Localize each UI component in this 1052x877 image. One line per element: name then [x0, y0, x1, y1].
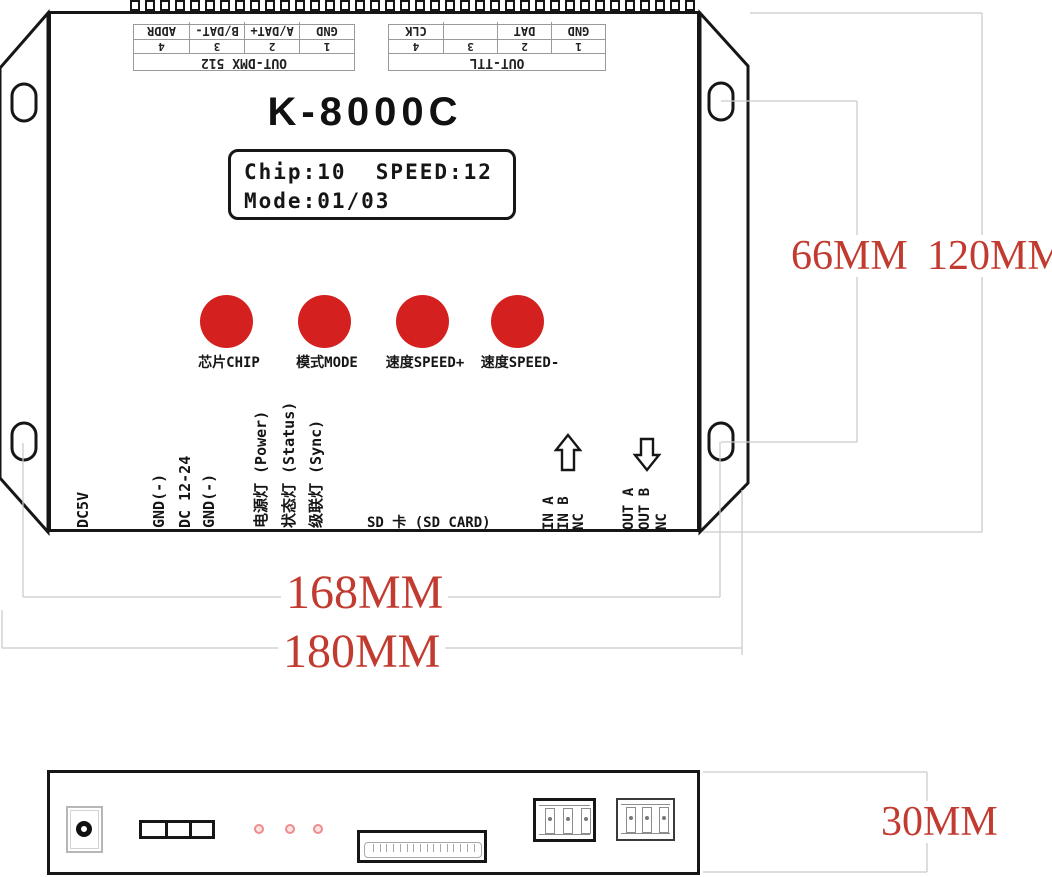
model-title: K-8000C — [230, 90, 500, 135]
lcd-line-2: Mode:01/03 — [244, 187, 513, 216]
connector-tooth — [655, 0, 665, 11]
port-pin-number: 3 — [189, 39, 244, 53]
terminal-screw — [642, 807, 652, 833]
connector-tooth — [595, 0, 605, 11]
gnd-label-2: GND(-) — [200, 474, 218, 528]
port-pin-number: 1 — [551, 39, 605, 53]
terminal-screw — [659, 807, 669, 833]
screw-dot — [548, 817, 552, 821]
connector-tooth — [145, 0, 155, 11]
connector-tooth — [415, 0, 425, 11]
screw-dot — [629, 816, 633, 820]
mounting-hole — [12, 423, 36, 460]
power-terminal-block — [139, 820, 215, 839]
connector-tooth — [190, 0, 200, 11]
sd-contact-tick — [447, 844, 448, 852]
dc-jack-pin — [76, 821, 92, 837]
lcd-line-1: Chip:10 SPEED:12 — [244, 158, 513, 187]
port-pin-name: CLK — [389, 22, 443, 39]
port-pin-name: DAT — [497, 22, 551, 39]
gnd-label-1: GND(-) — [150, 474, 168, 528]
connector-tooth — [475, 0, 485, 11]
sd-contact-tick — [427, 844, 428, 852]
dim-depth: 30MM — [876, 801, 1003, 843]
out-a-label: OUT A — [622, 488, 637, 530]
connector-tooth — [235, 0, 245, 11]
port-table-ttl: OUT-TTL1234GNDDATCLK — [388, 24, 606, 71]
dim-mount-width: 168MM — [281, 569, 448, 617]
led-indicator — [313, 824, 323, 834]
dim-hole-span: 66MM — [786, 235, 913, 277]
screw-dot — [584, 817, 588, 821]
terminal-screw — [545, 808, 555, 834]
lcd-display: Chip:10 SPEED:12 Mode:01/03 — [228, 149, 516, 220]
dim-total-width: 180MM — [278, 628, 445, 676]
sd-contact-tick — [474, 844, 475, 852]
connector-tooth — [400, 0, 410, 11]
port-table-dmx: OUT-DMX 5121234GNDA/DAT+B/DAT-ADDR — [133, 24, 355, 71]
nc-in-label: NC — [572, 513, 587, 530]
connector-tooth — [505, 0, 515, 11]
connector-tooth — [205, 0, 215, 11]
port-pin-number: 4 — [134, 39, 189, 53]
port-pin-number: 1 — [299, 39, 354, 53]
port-title: OUT-TTL — [389, 53, 605, 70]
port-pin-number: 2 — [497, 39, 551, 53]
sd-contact-tick — [413, 844, 414, 852]
power-led-label: 电源灯 (Power) — [252, 411, 270, 528]
connector-tooth — [580, 0, 590, 11]
speed-minus-button-label: 速度SPEED- — [445, 352, 595, 372]
terminal-line — [621, 804, 670, 805]
mounting-hole — [12, 84, 36, 121]
connector-tooth — [295, 0, 305, 11]
sd-card-label: SD 卡 (SD CARD) — [367, 512, 491, 532]
port-pin-name: GND — [551, 22, 605, 39]
screw-dot — [566, 817, 570, 821]
status-led-label: 状态灯 (Status) — [280, 402, 298, 528]
screw-dot — [662, 816, 666, 820]
sd-card-slot — [357, 830, 487, 863]
port-pin-number: 2 — [244, 39, 299, 53]
output-terminal-block-2 — [616, 798, 675, 841]
sd-slot-contacts — [364, 842, 482, 858]
dim-height: 120MM — [922, 235, 1052, 277]
port-title: OUT-DMX 512 — [134, 53, 354, 70]
terminal-line — [621, 833, 670, 834]
sd-contact-tick — [467, 844, 468, 852]
out-b-label: OUT B — [638, 488, 653, 530]
connector-tooth — [130, 0, 140, 11]
chip-button — [200, 295, 253, 348]
port-pin-name: GND — [299, 22, 354, 39]
sd-contact-tick — [433, 844, 434, 852]
connector-tooth — [445, 0, 455, 11]
connector-tooth — [685, 0, 695, 11]
port-pin-number: 3 — [443, 39, 497, 53]
connector-tooth — [430, 0, 440, 11]
connector-tooth — [220, 0, 230, 11]
sd-contact-tick — [453, 844, 454, 852]
dc5v-label: DC5V — [74, 492, 92, 528]
connector-tooth — [310, 0, 320, 11]
connector-tooth — [160, 0, 170, 11]
connector-tooth — [325, 0, 335, 11]
connector-tooth — [250, 0, 260, 11]
diagram-canvas: K-8000C Chip:10 SPEED:12 Mode:01/03 SD 卡… — [0, 0, 1052, 877]
connector-tooth — [625, 0, 635, 11]
sd-contact-tick — [407, 844, 408, 852]
led-indicator — [254, 824, 264, 834]
port-pin-name: A/DAT+ — [244, 22, 299, 39]
port-pin-name: ADDR — [134, 22, 189, 39]
terminal-screw — [581, 808, 591, 834]
sd-contact-tick — [400, 844, 401, 852]
sd-contact-tick — [380, 844, 381, 852]
connector-tooth — [265, 0, 275, 11]
connector-tooth — [370, 0, 380, 11]
dc12-24-label: DC 12-24 — [176, 456, 194, 528]
connector-tooth — [175, 0, 185, 11]
connector-tooth — [535, 0, 545, 11]
in-b-label: IN B — [557, 496, 572, 530]
speed-minus-button — [491, 295, 544, 348]
sd-contact-tick — [386, 844, 387, 852]
sd-contact-tick — [460, 844, 461, 852]
connector-tooth — [280, 0, 290, 11]
connector-tooth — [640, 0, 650, 11]
output-terminal-block-1 — [533, 798, 596, 842]
port-pin-name: B/DAT- — [189, 22, 244, 39]
connector-tooth — [565, 0, 575, 11]
connector-tooth — [355, 0, 365, 11]
sd-contact-tick — [373, 844, 374, 852]
connector-tooth — [550, 0, 560, 11]
connector-tooth — [385, 0, 395, 11]
sd-contact-tick — [440, 844, 441, 852]
port-pin-name — [443, 22, 497, 39]
terminal-line — [539, 805, 590, 806]
connector-tooth — [610, 0, 620, 11]
speed-plus-button — [396, 295, 449, 348]
connector-tooth — [490, 0, 500, 11]
in-a-label: IN A — [542, 496, 557, 530]
nc-out-label: NC — [655, 513, 670, 530]
connector-tooth — [460, 0, 470, 11]
terminal-line — [539, 834, 590, 835]
connector-tooth — [520, 0, 530, 11]
connector-tooth — [340, 0, 350, 11]
connector-tooth — [670, 0, 680, 11]
sd-contact-tick — [420, 844, 421, 852]
led-indicator — [285, 824, 295, 834]
mode-button — [298, 295, 351, 348]
screw-dot — [645, 816, 649, 820]
terminal-screw — [626, 807, 636, 833]
sync-led-label: 级联灯 (Sync) — [307, 420, 325, 528]
sd-contact-tick — [393, 844, 394, 852]
terminal-screw — [563, 808, 573, 834]
port-pin-number: 4 — [389, 39, 443, 53]
